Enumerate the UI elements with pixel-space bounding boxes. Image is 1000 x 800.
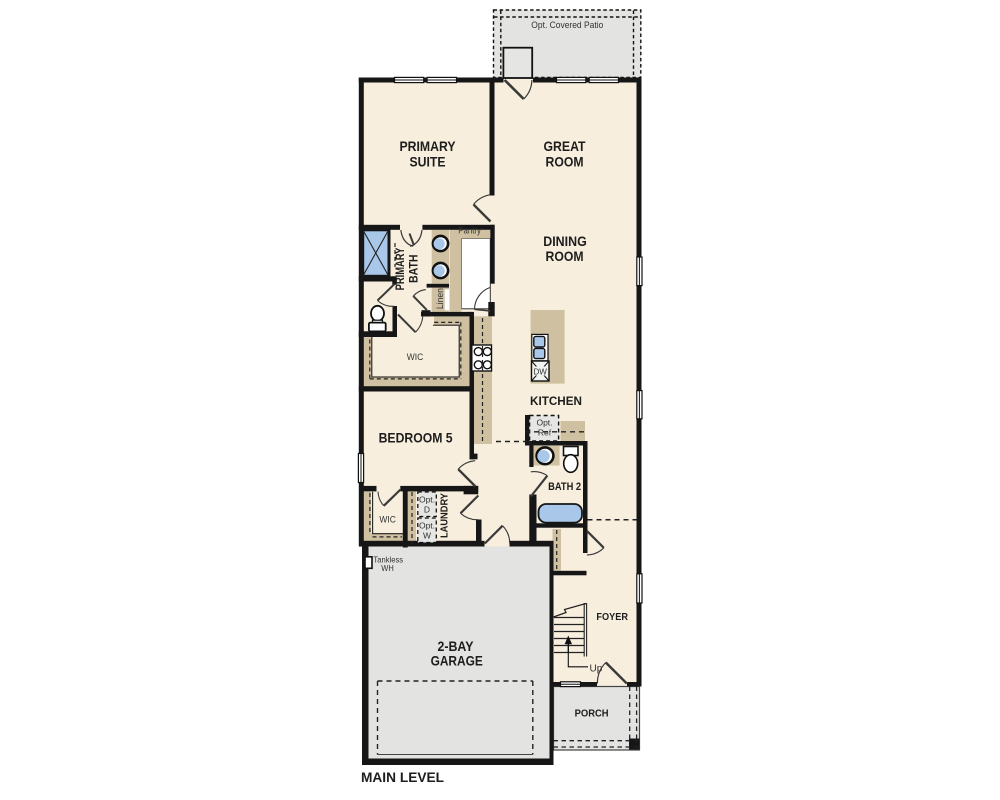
svg-text:BATH: BATH [407,254,421,283]
svg-text:PRIMARY: PRIMARY [393,248,407,291]
svg-text:MAIN LEVEL: MAIN LEVEL [361,770,444,785]
svg-text:BEDROOM 5: BEDROOM 5 [379,430,453,446]
svg-text:Opt.: Opt. [419,495,435,505]
svg-text:GREAT: GREAT [544,138,586,154]
svg-text:WIC: WIC [379,514,396,525]
svg-text:Opt. Covered Patio: Opt. Covered Patio [531,20,603,30]
svg-text:LAUNDRY: LAUNDRY [439,493,450,538]
svg-text:WH: WH [381,563,394,573]
svg-text:SUITE: SUITE [410,154,446,170]
svg-text:KITCHEN: KITCHEN [530,396,582,408]
svg-text:GARAGE: GARAGE [431,652,483,668]
svg-text:DW: DW [533,367,547,377]
svg-text:BATH 2: BATH 2 [548,481,581,493]
svg-text:Pantry: Pantry [458,226,481,236]
svg-text:Opt.: Opt. [536,418,552,428]
svg-text:DINING: DINING [543,233,587,249]
svg-text:PRIMARY: PRIMARY [400,138,457,154]
svg-text:Ref: Ref [538,428,552,438]
svg-text:PORCH: PORCH [575,708,609,719]
svg-text:Opt.: Opt. [419,521,435,531]
svg-text:FOYER: FOYER [596,612,628,623]
svg-text:Up: Up [590,664,603,675]
svg-text:Linen: Linen [435,288,445,309]
svg-text:ROOM: ROOM [546,154,584,170]
svg-text:ROOM: ROOM [546,248,584,264]
svg-text:W: W [423,531,431,541]
svg-text:D: D [424,505,430,515]
svg-text:WIC: WIC [407,351,424,362]
